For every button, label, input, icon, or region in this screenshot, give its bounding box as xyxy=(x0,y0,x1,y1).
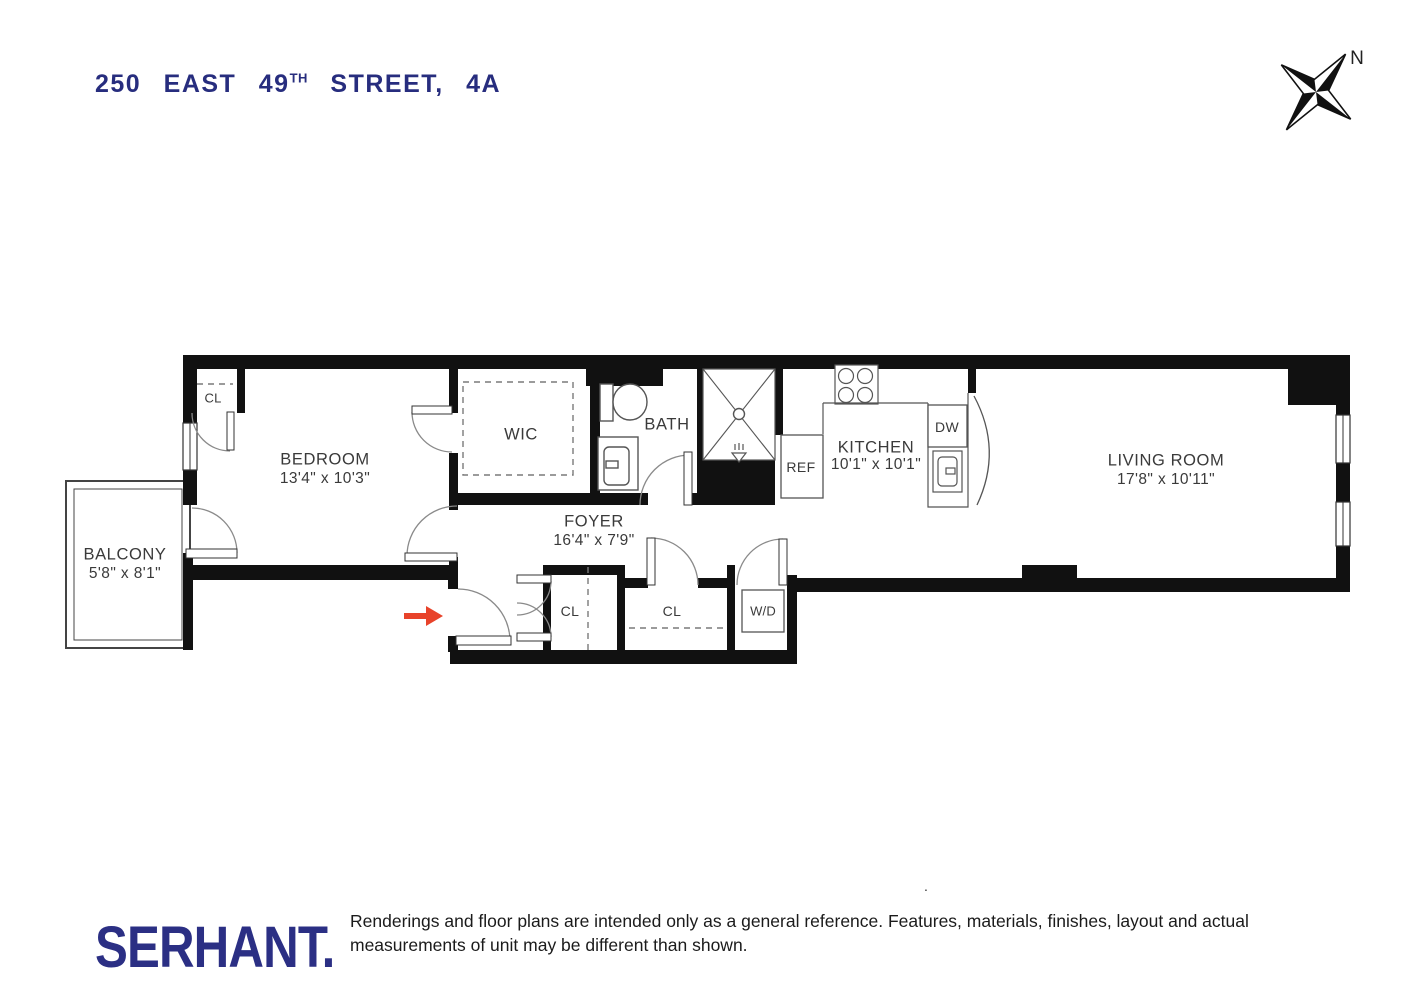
disclaimer-text: Renderings and floor plans are intended … xyxy=(350,909,1340,957)
foyer-label: FOYER xyxy=(564,513,624,532)
toilet-icon xyxy=(600,384,647,421)
bath-label: BATH xyxy=(644,416,689,435)
washer-dryer-label: W/D xyxy=(750,604,776,619)
wic-label: WIC xyxy=(504,426,538,445)
bedroom-window-icon xyxy=(183,423,197,470)
entry-arrow-icon xyxy=(404,606,443,626)
stove-icon xyxy=(835,365,878,404)
kitchen-label: KITCHEN xyxy=(838,439,915,458)
living-room-label: LIVING ROOM xyxy=(1108,452,1225,471)
door-leaves xyxy=(186,406,787,645)
living-room-window-icon-2 xyxy=(1336,502,1350,546)
foyer-closet1-label: CL xyxy=(561,603,580,619)
living-room-window-icon-1 xyxy=(1336,415,1350,463)
kitchen-sink-icon xyxy=(933,451,962,492)
balcony-dims: 5'8" x 8'1" xyxy=(89,565,161,583)
floor-plan-page: 250 EAST 49TH STREET, 4A N xyxy=(0,0,1415,1000)
refrigerator-label: REF xyxy=(786,459,815,475)
bedroom-closet-label: CL xyxy=(204,391,221,406)
kitchen-dims: 10'1" x 10'1" xyxy=(831,456,921,474)
balcony-label: BALCONY xyxy=(83,546,166,565)
floor-plan-drawing xyxy=(0,0,1415,1000)
serhant-logo: SERHANT. xyxy=(95,913,334,981)
dishwasher-label: DW xyxy=(935,419,959,435)
foyer-dims: 16'4" x 7'9" xyxy=(553,532,634,550)
bedroom-dims: 13'4" x 10'3" xyxy=(280,470,370,488)
stray-dot: . xyxy=(924,878,928,894)
foyer-closet2-label: CL xyxy=(663,603,682,619)
bedroom-label: BEDROOM xyxy=(280,451,369,470)
living-room-dims: 17'8" x 10'11" xyxy=(1117,471,1215,489)
sink-icon xyxy=(598,437,638,490)
